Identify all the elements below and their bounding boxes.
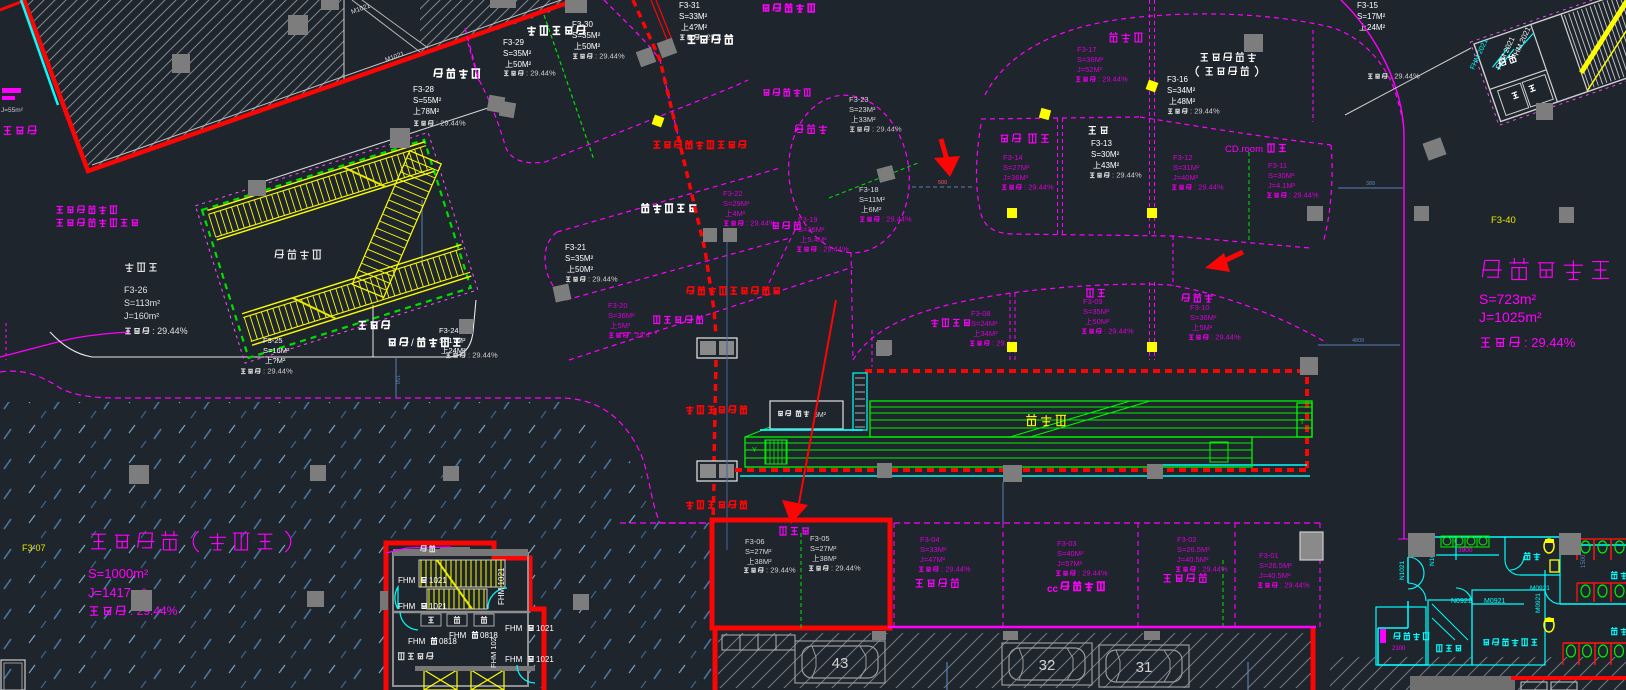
svg-text:S=31M²: S=31M² — [1173, 163, 1200, 172]
svg-text:M0921: M0921 — [1484, 598, 1506, 605]
svg-text:FHM 102: FHM 102 — [489, 637, 498, 668]
svg-text:F3-04: F3-04 — [920, 535, 940, 544]
svg-text:S=55M²: S=55M² — [413, 96, 442, 105]
svg-text:FHM: FHM — [398, 602, 416, 611]
svg-text:S=36M²: S=36M² — [608, 311, 635, 320]
svg-text:: 29.44%: : 29.44% — [766, 566, 796, 575]
svg-text:: 29.44%: : 29.44% — [1112, 171, 1142, 180]
svg-text:S=40M²: S=40M² — [1057, 549, 1084, 558]
svg-text:F3-16: F3-16 — [1167, 75, 1188, 84]
svg-text:F3-26: F3-26 — [124, 285, 148, 295]
svg-text:: 29.44%: : 29.44% — [1289, 191, 1319, 200]
svg-text:F3-17: F3-17 — [1077, 45, 1097, 54]
svg-text:1021: 1021 — [429, 602, 447, 611]
svg-text:S=16M²: S=16M² — [263, 346, 290, 355]
svg-text:: 29.44%: : 29.44% — [1211, 333, 1241, 342]
svg-text:: 29.44%: : 29.44% — [1280, 581, 1310, 590]
svg-text:S=34M²: S=34M² — [1167, 86, 1196, 95]
svg-text:: 29.44%: : 29.44% — [595, 52, 625, 61]
svg-text:S=35M²: S=35M² — [1083, 307, 1110, 316]
svg-text:F3-02: F3-02 — [1177, 535, 1197, 544]
svg-text:2100: 2100 — [1392, 646, 1406, 652]
svg-text:F3-18: F3-18 — [859, 185, 879, 194]
svg-text:F3-22: F3-22 — [723, 189, 743, 198]
svg-text:J=36M²: J=36M² — [1003, 173, 1029, 182]
svg-text:31: 31 — [1136, 659, 1153, 676]
svg-text:: 29.44%: : 29.44% — [263, 367, 293, 376]
svg-text:F3-40: F3-40 — [1491, 215, 1516, 226]
svg-text:N1021: N1021 — [1399, 560, 1406, 580]
svg-text:: 29.44%: : 29.44% — [526, 69, 556, 78]
svg-text:M0921: M0921 — [1535, 593, 1542, 613]
svg-text:S=113m²: S=113m² — [124, 298, 160, 308]
svg-text:上4?M²: 上4?M² — [681, 23, 708, 32]
svg-text:S=27M²: S=27M² — [1003, 163, 1030, 172]
svg-text:J=52M²: J=52M² — [1077, 65, 1103, 74]
svg-text:: 29.44%: : 29.44% — [1098, 75, 1128, 84]
svg-text:: 29.44%: : 29.44% — [1198, 565, 1228, 574]
svg-text:S=30M²: S=30M² — [1091, 150, 1120, 159]
svg-text:J=55m²: J=55m² — [1, 107, 24, 114]
svg-text:S=27M²: S=27M² — [810, 544, 837, 553]
svg-text:4809: 4809 — [1352, 338, 1364, 344]
svg-text:F3-12: F3-12 — [1173, 153, 1193, 162]
svg-text:: 29.44%: : 29.44% — [152, 326, 188, 336]
svg-text:上50M²: 上50M² — [505, 60, 532, 69]
svg-text:: 29.44%: : 29.44% — [588, 275, 618, 284]
svg-text:F3-10: F3-10 — [1190, 303, 1210, 312]
svg-text:上5M²: 上5M² — [1192, 323, 1213, 332]
svg-text:F3-01: F3-01 — [1259, 551, 1279, 560]
svg-text:3900: 3900 — [1458, 547, 1473, 554]
svg-text:S=36M²: S=36M² — [1190, 313, 1217, 322]
svg-text:: 29.4: : 29.4 — [702, 33, 721, 42]
svg-text:: 29.4: : 29.4 — [631, 331, 650, 340]
svg-text:F3-09: F3-09 — [1083, 297, 1103, 306]
svg-text:J=160m²: J=160m² — [124, 311, 159, 321]
svg-text:F3-24: F3-24 — [439, 326, 459, 335]
svg-text:M0921: M0921 — [1530, 585, 1550, 592]
svg-text:: 29.44%: : 29.44% — [831, 564, 861, 573]
svg-text:: 29.44%: : 29.44% — [819, 245, 849, 254]
svg-text:FHM: FHM — [505, 655, 523, 664]
svg-text:N0921: N0921 — [1451, 598, 1472, 605]
svg-text:S=24M²: S=24M² — [971, 319, 998, 328]
svg-text:FHM: FHM — [505, 624, 523, 633]
svg-text:FHM: FHM — [408, 637, 426, 646]
svg-text:F3-20: F3-20 — [608, 301, 628, 310]
svg-text:上48M²: 上48M² — [1169, 97, 1196, 106]
svg-text:: 29.44%: : 29.44% — [1078, 569, 1108, 578]
svg-text:1500: 1500 — [1581, 554, 1587, 568]
svg-text:43: 43 — [832, 655, 849, 672]
svg-text:S=17M²: S=17M² — [1357, 12, 1386, 21]
svg-text:32: 32 — [1039, 657, 1056, 674]
svg-text:F3-08: F3-08 — [971, 309, 991, 318]
svg-text:1021: 1021 — [429, 576, 447, 585]
svg-text:S=1000m²: S=1000m² — [88, 566, 149, 581]
svg-text:S=23M²: S=23M² — [849, 105, 876, 114]
svg-text:F3-06: F3-06 — [745, 537, 765, 546]
svg-text:J=4.1M²: J=4.1M² — [1268, 181, 1296, 190]
svg-text:FHM: FHM — [398, 576, 416, 585]
svg-text:F3-15: F3-15 — [1357, 1, 1378, 10]
svg-text:Y: Y — [752, 447, 757, 454]
svg-text:上38M²: 上38M² — [812, 554, 837, 563]
svg-text:J=47M²: J=47M² — [920, 555, 946, 564]
svg-text:F3-21: F3-21 — [565, 243, 586, 252]
svg-text:上?M²: 上?M² — [265, 356, 286, 365]
svg-text:F3-31: F3-31 — [679, 1, 700, 10]
svg-text:S=36M²: S=36M² — [798, 225, 825, 234]
svg-text:上50M²: 上50M² — [1085, 317, 1110, 326]
svg-text:S=33M²: S=33M² — [679, 12, 708, 21]
svg-text:上33M²: 上33M² — [851, 115, 876, 124]
svg-text:上78M²: 上78M² — [413, 107, 440, 116]
svg-text:F3-13: F3-13 — [1091, 139, 1112, 148]
svg-text:FHM: FHM — [449, 631, 467, 640]
svg-text:: 29.44%: : 29.44% — [872, 125, 902, 134]
svg-text:上43M²: 上43M² — [1093, 161, 1120, 170]
svg-text:/: / — [411, 338, 414, 349]
svg-text:F3-23: F3-23 — [849, 95, 869, 104]
svg-text:: 29.44%: : 29.44% — [468, 351, 498, 360]
svg-text:J=57M²: J=57M² — [1057, 559, 1083, 568]
svg-text:上34M²: 上34M² — [973, 329, 998, 338]
svg-text:上6M²: 上6M² — [861, 205, 882, 214]
svg-text:上50M²: 上50M² — [567, 265, 594, 274]
svg-text:1021: 1021 — [536, 624, 554, 633]
svg-text:150: 150 — [394, 375, 400, 384]
svg-text:: 29.44%: : 29.44% — [436, 119, 466, 128]
svg-text:CD.room: CD.room — [1225, 144, 1263, 155]
svg-text:F3-11: F3-11 — [1268, 161, 1287, 170]
svg-text:J=40.5M²: J=40.5M² — [1177, 555, 1209, 564]
svg-text:S=26.5M²: S=26.5M² — [1259, 561, 1292, 570]
svg-text:: 29.44%: : 29.44% — [1390, 72, 1420, 81]
svg-text:: 29.44%: : 29.44% — [941, 565, 971, 574]
svg-text:S=33M²: S=33M² — [920, 545, 947, 554]
svg-text:388: 388 — [1366, 181, 1375, 187]
svg-text:F3-14: F3-14 — [1003, 153, 1023, 162]
svg-text:: 29.44%: : 29.44% — [1024, 183, 1054, 192]
svg-text:S=35M²: S=35M² — [565, 254, 594, 263]
svg-text:: 29.44%: : 29.44% — [1524, 335, 1576, 350]
svg-text:500: 500 — [938, 180, 947, 186]
svg-text:cc: cc — [1047, 584, 1059, 595]
svg-text:S=26.5M²: S=26.5M² — [1177, 545, 1210, 554]
svg-text:S=29M²: S=29M² — [723, 199, 750, 208]
svg-text:1021: 1021 — [536, 655, 554, 664]
svg-text:F3-25: F3-25 — [263, 336, 283, 345]
svg-text:S=723m²: S=723m² — [1479, 291, 1537, 307]
svg-text:T: T — [1300, 419, 1305, 426]
svg-text:S=11M²: S=11M² — [859, 195, 885, 204]
svg-text:F3-05: F3-05 — [810, 534, 830, 543]
svg-text:J=40.5M²: J=40.5M² — [1259, 571, 1291, 580]
svg-text:J=40M²: J=40M² — [1173, 173, 1199, 182]
svg-text:S=35M²: S=35M² — [503, 49, 532, 58]
svg-text:上4M²: 上4M² — [725, 209, 746, 218]
svg-text:S=17M²: S=17M² — [439, 336, 466, 345]
svg-text:: 29.44%: : 29.44% — [1194, 183, 1224, 192]
svg-text:上5M²: 上5M² — [610, 321, 631, 330]
svg-text:S=35M²: S=35M² — [572, 31, 601, 40]
svg-text:: 29.44%: : 29.44% — [746, 219, 776, 228]
svg-text:F3-03: F3-03 — [1057, 539, 1077, 548]
svg-text:F3-07: F3-07 — [22, 543, 46, 553]
svg-text:J=1025m²: J=1025m² — [1479, 309, 1542, 325]
svg-text:S=30M²: S=30M² — [1268, 171, 1295, 180]
svg-text:上50M²: 上50M² — [574, 42, 601, 51]
svg-text:上5.4M²: 上5.4M² — [800, 235, 827, 244]
svg-text:F3-30: F3-30 — [572, 20, 593, 29]
svg-text:F3-29: F3-29 — [503, 38, 524, 47]
svg-text:FHM 1021: FHM 1021 — [497, 567, 506, 605]
svg-text:F3-28: F3-28 — [413, 85, 434, 94]
svg-text:: 29.44%: : 29.44% — [882, 215, 912, 224]
svg-text:上38M²: 上38M² — [747, 557, 772, 566]
svg-text:: 29.44%: : 29.44% — [1190, 107, 1220, 116]
svg-text:S=36M²: S=36M² — [1077, 55, 1104, 64]
svg-text:S=27M²: S=27M² — [745, 547, 772, 556]
svg-text:: 29.44%: : 29.44% — [1104, 327, 1134, 336]
